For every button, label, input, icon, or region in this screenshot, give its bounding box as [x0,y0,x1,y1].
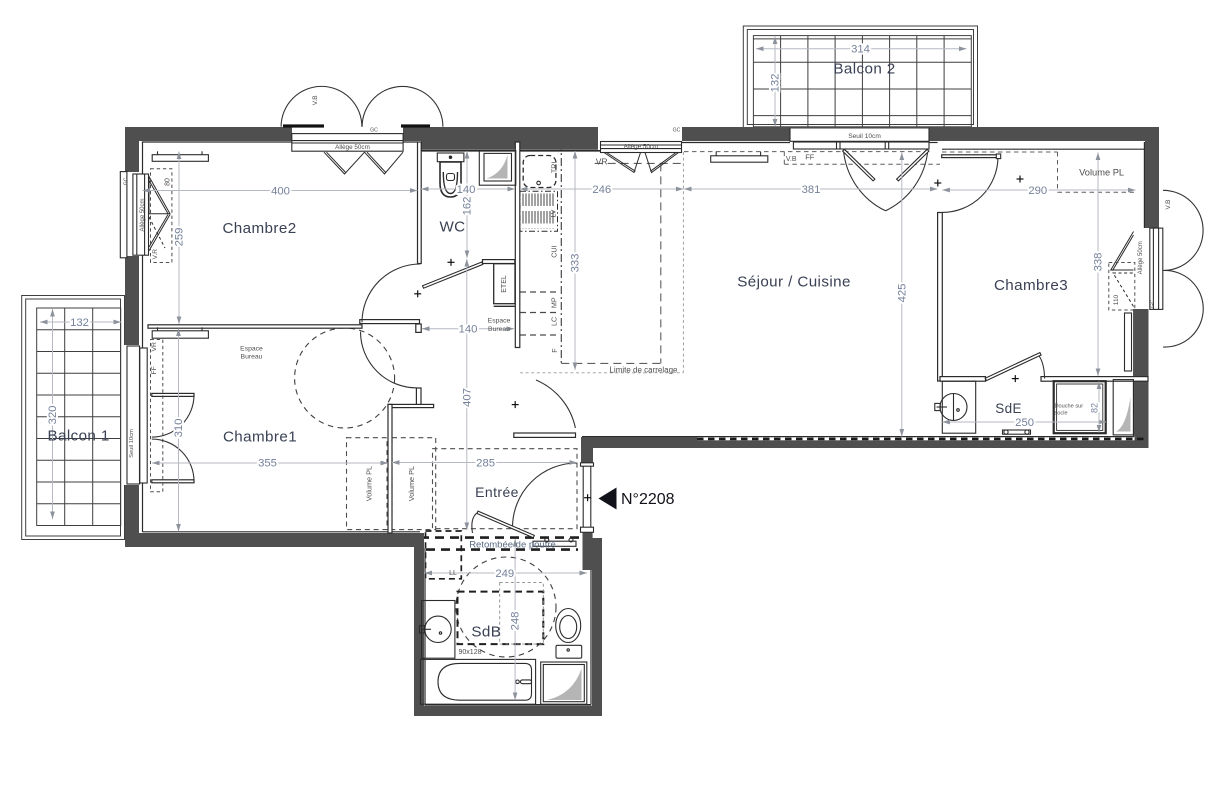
svg-text:338: 338 [1093,253,1105,272]
svg-text:WC: WC [439,219,465,236]
svg-text:250: 250 [1015,417,1034,429]
svg-text:N°2208: N°2208 [621,491,675,508]
svg-text:SdB: SdB [471,624,501,641]
svg-text:GC: GC [123,177,129,185]
svg-text:132: 132 [70,317,89,329]
svg-text:140: 140 [457,184,476,196]
svg-text:VR: VR [596,156,608,166]
svg-text:Douche sur: Douche sur [1055,404,1084,410]
svg-text:socle: socle [1055,411,1068,417]
svg-text:Allège 50cm: Allège 50cm [624,143,659,150]
svg-text:132: 132 [770,74,782,93]
svg-text:314: 314 [851,44,870,56]
svg-text:ETEL: ETEL [501,275,508,293]
svg-text:Espace: Espace [488,318,511,325]
svg-text:285: 285 [476,457,495,469]
svg-text:V.B: V.B [1165,200,1172,210]
svg-text:320: 320 [47,406,59,425]
svg-text:80: 80 [165,178,172,186]
svg-text:Entrée: Entrée [475,484,519,500]
svg-text:Volume PL: Volume PL [1079,167,1124,177]
svg-text:Bureau: Bureau [241,354,263,361]
svg-text:V.B: V.B [786,156,797,163]
svg-text:FF: FF [151,366,158,374]
svg-text:Séjour / Cuisine: Séjour / Cuisine [737,274,851,291]
svg-text:LC: LC [550,317,559,326]
svg-text:Retombée de poutre: Retombée de poutre [469,540,556,551]
svg-text:Volume PL: Volume PL [407,466,416,501]
svg-text:407: 407 [461,388,473,407]
svg-text:355: 355 [258,458,277,470]
svg-text:LV: LV [551,209,558,217]
svg-text:Balcon 2: Balcon 2 [833,61,895,78]
svg-text:LL: LL [449,570,457,577]
svg-text:Chambre3: Chambre3 [994,277,1068,294]
svg-text:Allège 50cm: Allège 50cm [1138,241,1144,274]
svg-text:82: 82 [1090,403,1100,413]
svg-text:V.R: V.R [152,249,159,260]
svg-text:VR: VR [151,342,158,352]
svg-text:Allège 50cm: Allège 50cm [140,198,146,231]
svg-text:TRI: TRI [549,162,558,174]
svg-text:248: 248 [510,612,522,631]
svg-text:Chambre1: Chambre1 [223,429,297,446]
svg-text:400: 400 [271,186,290,198]
svg-text:310: 310 [173,419,185,438]
svg-text:Seuil 10cm: Seuil 10cm [129,429,135,458]
svg-text:V.B: V.B [312,95,319,105]
svg-text:MP: MP [550,297,559,308]
svg-text:GC: GC [673,128,681,134]
svg-text:F: F [550,348,559,353]
svg-text:425: 425 [896,284,908,303]
svg-text:GC: GC [1150,300,1156,308]
svg-text:Limite de carrelage: Limite de carrelage [609,366,678,375]
svg-text:CUI: CUI [550,245,559,257]
svg-text:381: 381 [802,184,821,196]
svg-text:Espace: Espace [240,346,263,353]
svg-text:Seuil 10cm: Seuil 10cm [848,133,881,140]
svg-text:333: 333 [570,254,582,273]
svg-text:140: 140 [459,324,478,336]
svg-text:162: 162 [462,197,474,216]
svg-text:GC: GC [370,128,378,134]
svg-text:246: 246 [592,184,611,196]
svg-text:FF: FF [805,152,815,161]
svg-text:Chambre2: Chambre2 [222,220,296,237]
svg-text:259: 259 [174,228,186,247]
svg-text:Volume PL: Volume PL [364,466,373,501]
svg-text:249: 249 [495,568,514,580]
svg-text:SdE: SdE [995,401,1022,416]
svg-text:110: 110 [1113,294,1120,305]
svg-text:90x128: 90x128 [459,649,482,656]
svg-text:Allège 50cm: Allège 50cm [335,144,370,151]
svg-text:290: 290 [1028,185,1047,197]
svg-text:Bureau: Bureau [488,326,510,333]
svg-text:Balcon 1: Balcon 1 [47,428,109,445]
